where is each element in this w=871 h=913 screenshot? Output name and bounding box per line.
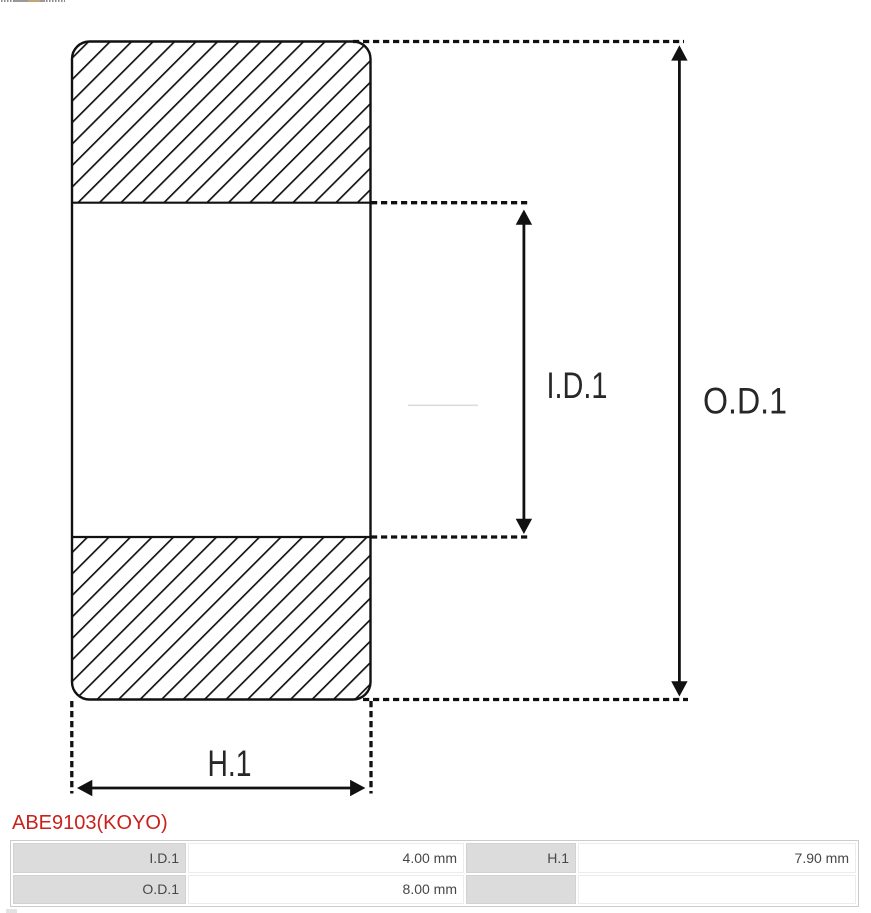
svg-text:H.1: H.1 — [208, 743, 252, 784]
svg-text:I.D.1: I.D.1 — [547, 365, 608, 406]
svg-text:O.D.1: O.D.1 — [703, 381, 787, 422]
